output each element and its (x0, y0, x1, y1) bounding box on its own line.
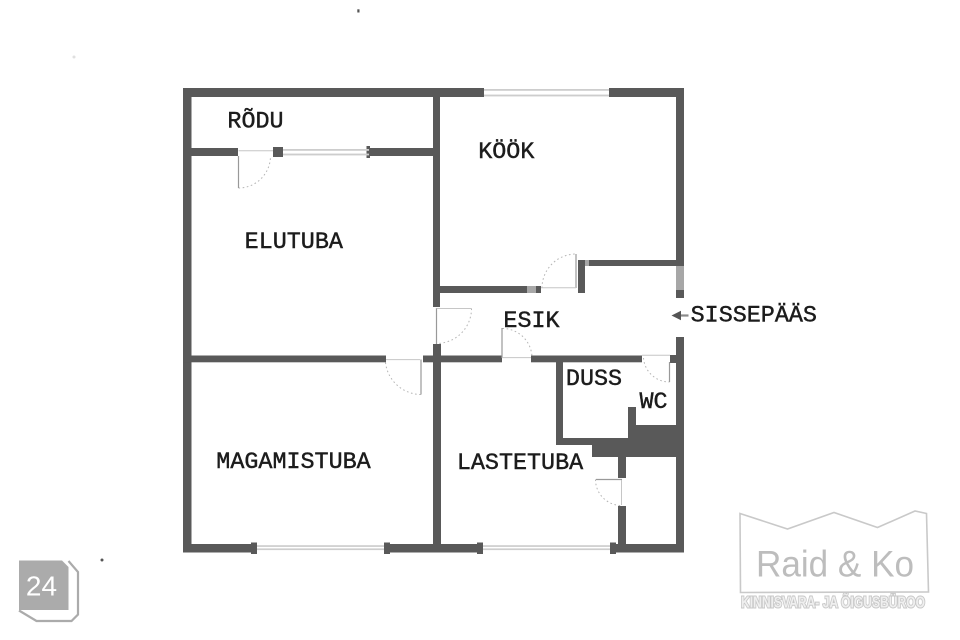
svg-text:DUSS: DUSS (566, 367, 622, 393)
svg-text:ESIK: ESIK (503, 309, 560, 335)
svg-text:SISSEPÄÄS: SISSEPÄÄS (691, 302, 817, 330)
svg-text:Raid & Ko: Raid & Ko (756, 544, 914, 585)
svg-text:RÕDU: RÕDU (227, 108, 283, 136)
svg-text:24: 24 (26, 571, 57, 602)
svg-text:MAGAMISTUBA: MAGAMISTUBA (216, 450, 371, 476)
svg-text:WC: WC (639, 390, 667, 416)
svg-text:KÖÖK: KÖÖK (478, 138, 535, 166)
svg-text:KINNISVARA- JA ÕIGUSBÜROO: KINNISVARA- JA ÕIGUSBÜROO (741, 594, 925, 612)
svg-text:LASTETUBA: LASTETUBA (457, 451, 584, 477)
svg-text:ELUTUBA: ELUTUBA (245, 230, 344, 256)
